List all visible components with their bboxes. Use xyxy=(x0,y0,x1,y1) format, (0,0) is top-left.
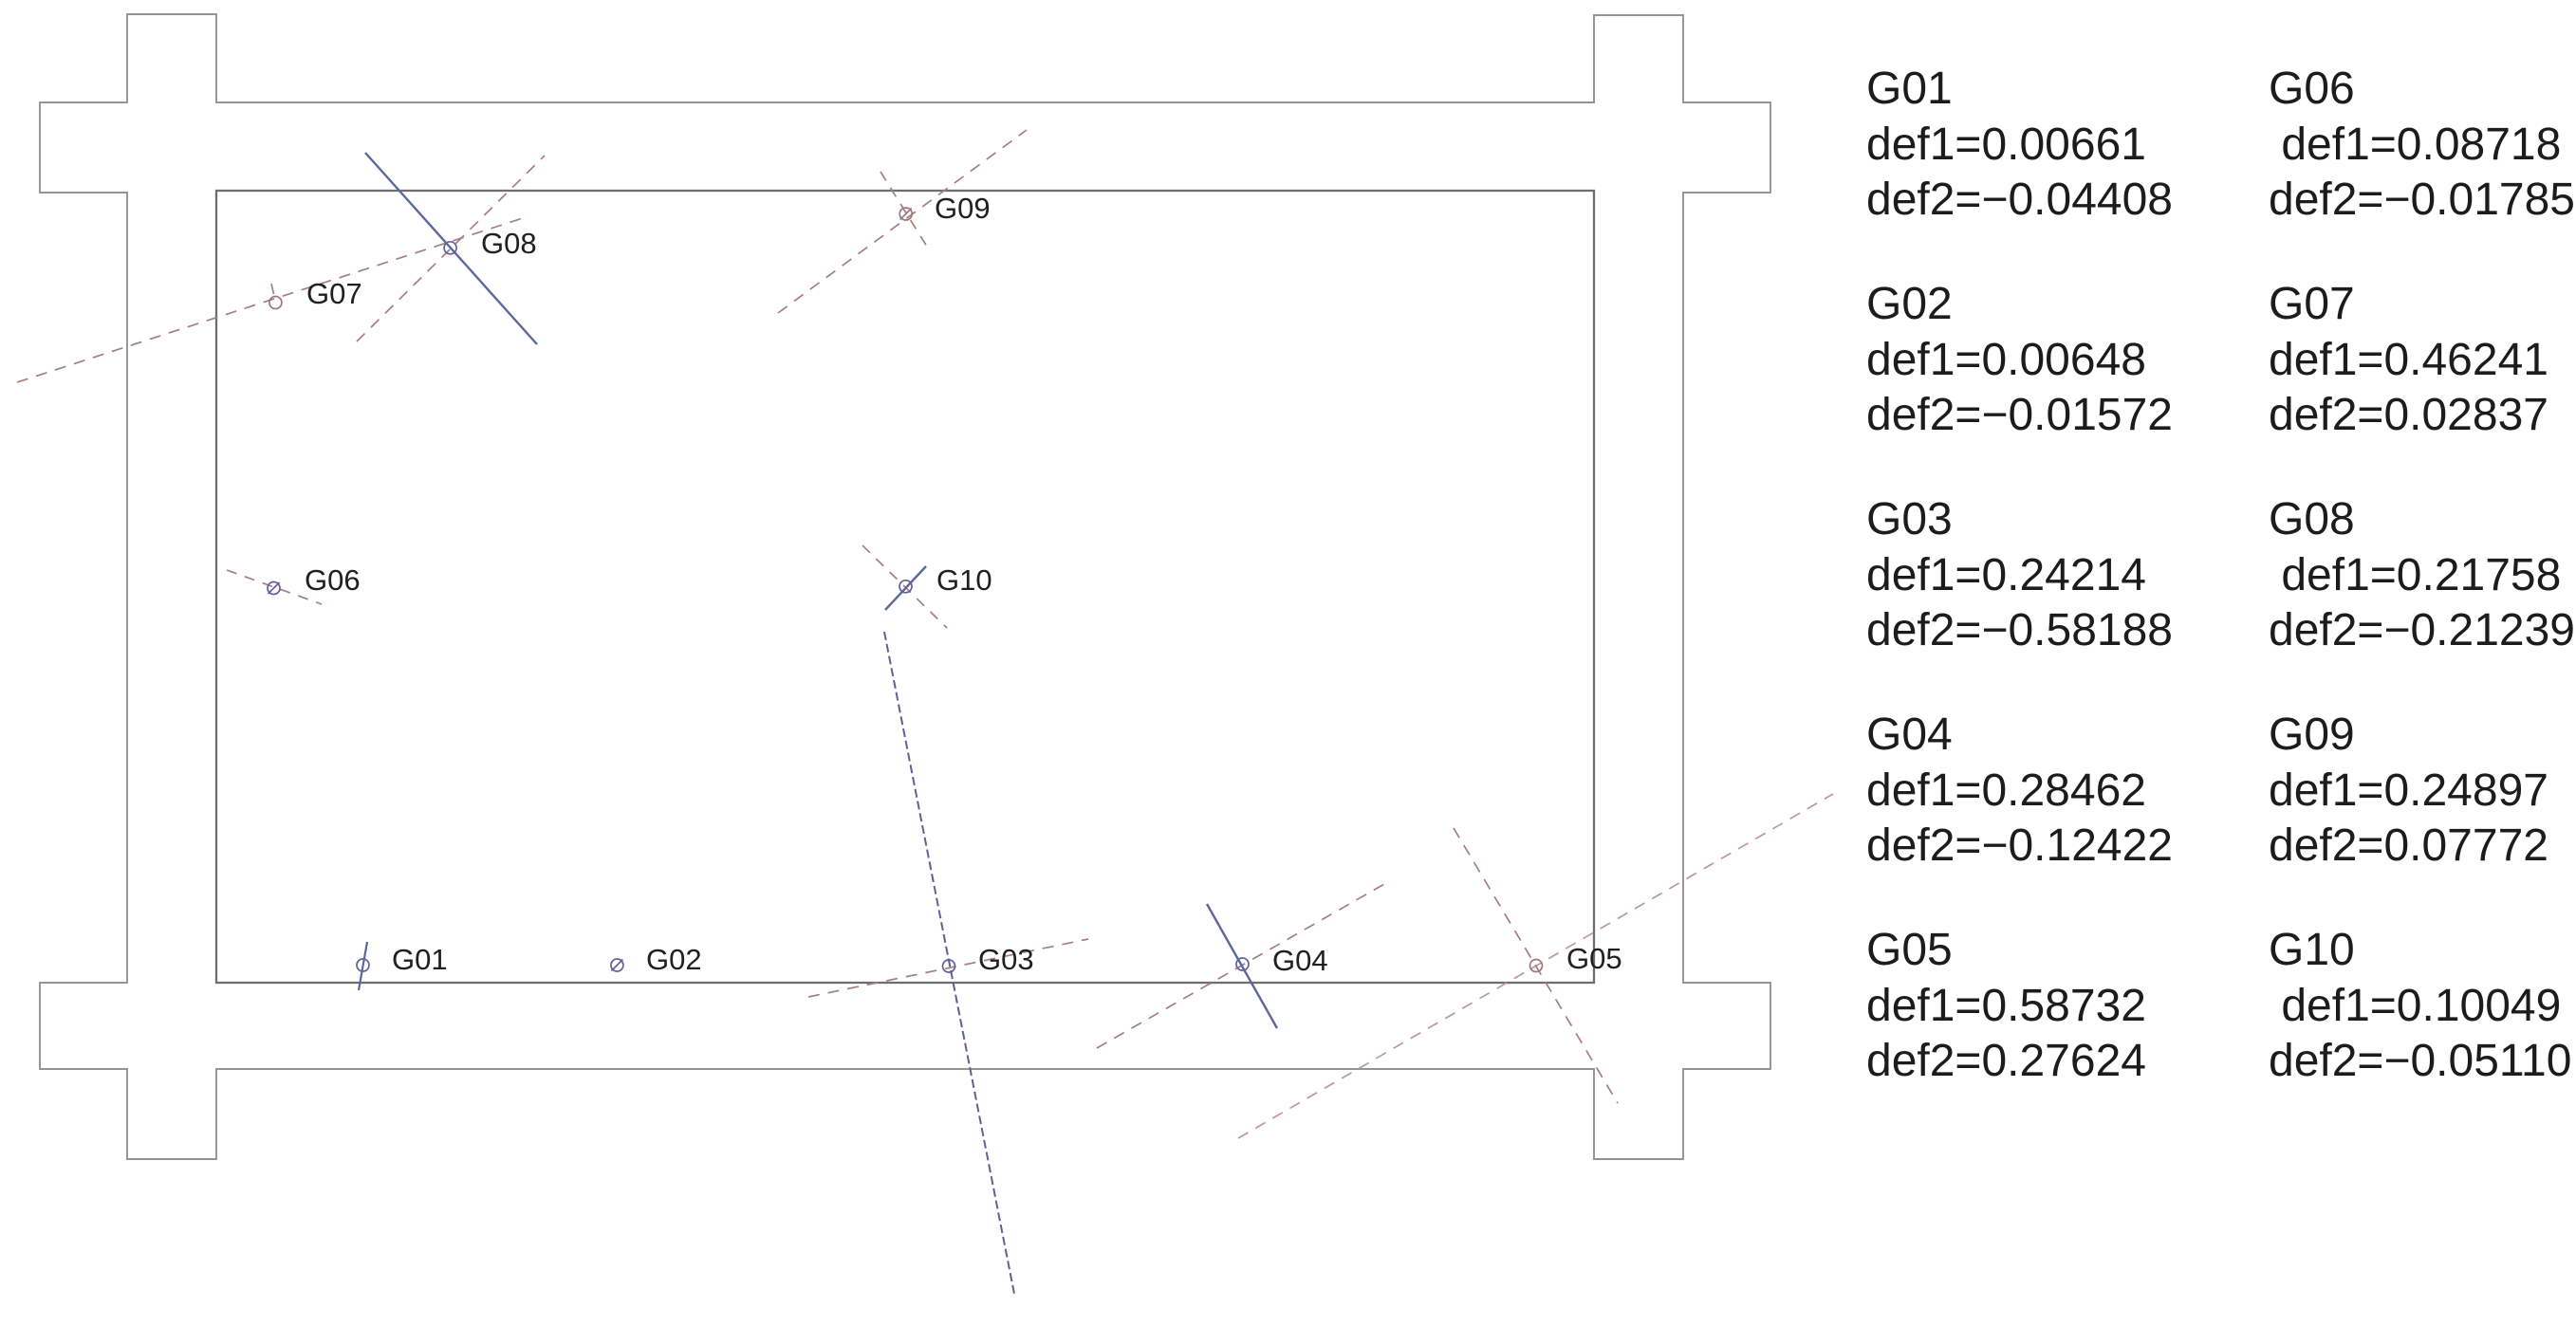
svg-text:G06: G06 xyxy=(305,563,361,597)
svg-text:G03: G03 xyxy=(978,943,1034,976)
svg-text:G02: G02 xyxy=(646,943,702,976)
svg-text:G10: G10 xyxy=(936,563,992,597)
svg-text:G07: G07 xyxy=(306,277,362,310)
svg-text:G09: G09 xyxy=(935,192,991,225)
svg-text:G05: G05 xyxy=(1566,942,1622,975)
svg-text:G04: G04 xyxy=(1272,944,1328,977)
svg-text:G08: G08 xyxy=(481,227,537,260)
svg-text:G01: G01 xyxy=(392,943,448,976)
